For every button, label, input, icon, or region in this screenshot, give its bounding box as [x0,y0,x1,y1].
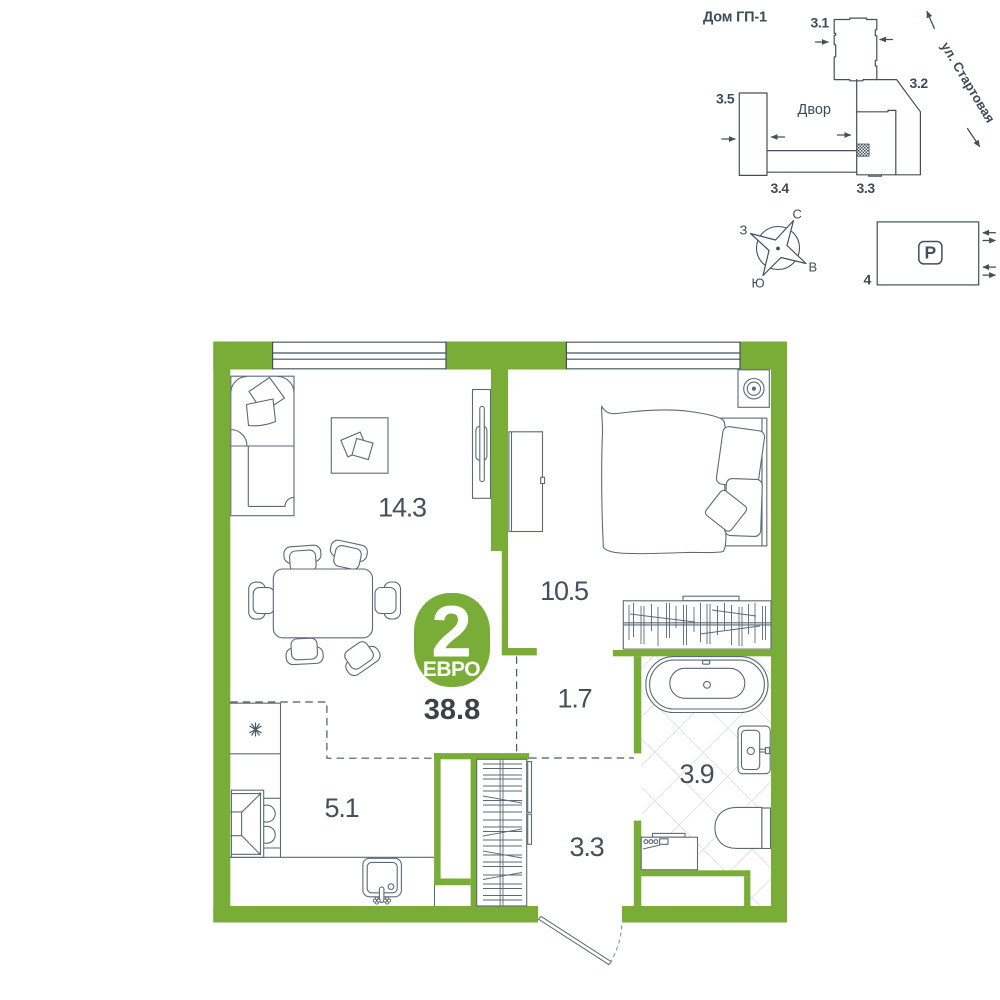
svg-text:5.1: 5.1 [325,793,359,823]
svg-text:14.3: 14.3 [378,493,426,523]
svg-text:3.3: 3.3 [570,832,604,862]
svg-text:3.4: 3.4 [771,180,790,196]
svg-text:10.5: 10.5 [540,576,588,606]
svg-text:Дом ГП-1: Дом ГП-1 [703,10,767,26]
svg-text:38.8: 38.8 [424,694,480,726]
svg-text:3.9: 3.9 [680,759,714,789]
svg-text:4: 4 [864,272,872,288]
svg-text:З: З [740,223,748,238]
svg-text:ул. Стартовая: ул. Стартовая [938,39,998,125]
svg-text:P: P [924,243,936,263]
svg-text:В: В [809,260,818,275]
svg-text:С: С [793,207,802,222]
svg-text:3.5: 3.5 [716,91,735,107]
svg-text:3.2: 3.2 [910,75,929,91]
svg-text:Двор: Двор [798,102,832,118]
svg-text:Ю: Ю [752,276,765,291]
svg-text:ЕВРО: ЕВРО [423,658,480,681]
svg-text:3.1: 3.1 [811,15,830,31]
svg-text:1.7: 1.7 [558,684,592,714]
svg-text:3.3: 3.3 [857,180,876,196]
